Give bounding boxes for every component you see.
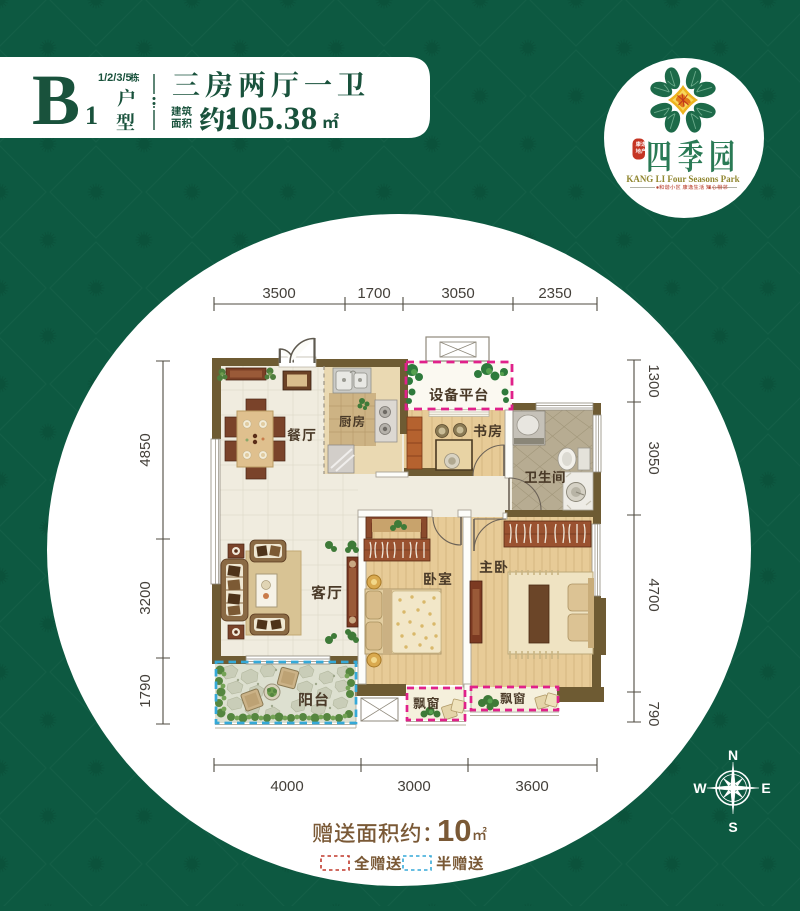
svg-text:3050: 3050	[645, 441, 662, 474]
svg-text:1700: 1700	[357, 285, 390, 302]
svg-text:1/2/3/5: 1/2/3/5	[98, 72, 132, 84]
svg-text:1300: 1300	[645, 364, 662, 397]
svg-text:1790: 1790	[137, 674, 154, 707]
svg-text:4850: 4850	[137, 433, 154, 466]
svg-text:3200: 3200	[137, 581, 154, 614]
svg-text:B: B	[32, 60, 80, 140]
svg-text:N: N	[728, 747, 738, 763]
svg-text:2350: 2350	[538, 285, 571, 302]
svg-text:790: 790	[645, 701, 662, 726]
svg-text:4000: 4000	[270, 778, 303, 795]
svg-text:3600: 3600	[515, 778, 548, 795]
svg-text:4700: 4700	[645, 578, 662, 611]
svg-text:S: S	[728, 819, 737, 835]
svg-text:W: W	[693, 780, 707, 796]
svg-text:3500: 3500	[262, 285, 295, 302]
svg-text:3000: 3000	[397, 778, 430, 795]
svg-text:1: 1	[85, 101, 98, 130]
svg-text:E: E	[761, 780, 770, 796]
svg-text:KANG LI Four Seasons Park: KANG LI Four Seasons Park	[626, 174, 739, 184]
svg-text:10: 10	[437, 813, 471, 848]
svg-text:105.38: 105.38	[224, 101, 318, 137]
svg-text:3050: 3050	[441, 285, 474, 302]
